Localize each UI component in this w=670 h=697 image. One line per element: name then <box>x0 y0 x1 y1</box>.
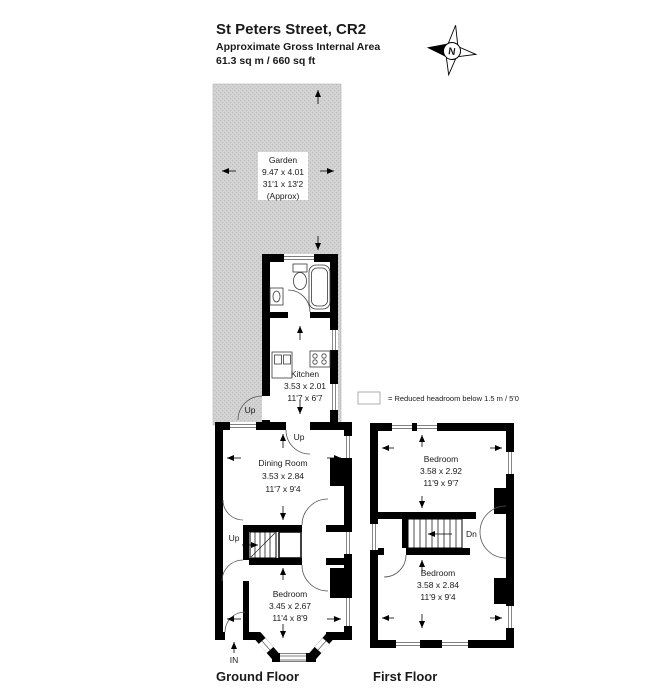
understairs-cupboard <box>279 532 301 558</box>
kitchen-steps-up-label: Up <box>294 432 305 442</box>
legend-swatch <box>358 392 380 404</box>
first-floor-plan: Dn Bedroom 3.58 x 2.92 11'9 x 9'7 Bedroo… <box>370 423 514 648</box>
floorplan-drawing: St Peters Street, CR2 Approximate Gross … <box>0 0 670 697</box>
legend: = Reduced headroom below 1.5 m / 5'0 <box>358 392 519 404</box>
floor-labels: Ground Floor First Floor <box>216 669 437 684</box>
dining-room-label: Dining Room 3.53 x 2.84 11'7 x 9'4 <box>258 458 307 494</box>
bedroom-front-metric: 3.58 x 2.84 <box>417 580 459 590</box>
garden-imperial: 31'1 x 13'2 <box>263 179 304 189</box>
kitchen-metric: 3.53 x 2.01 <box>284 381 326 391</box>
dining-name: Dining Room <box>258 458 307 468</box>
page-area: 61.3 sq m / 660 sq ft <box>216 55 316 67</box>
compass-n-label: N <box>447 46 456 58</box>
entrance: IN <box>230 642 239 665</box>
bay-window <box>257 635 331 662</box>
basin-icon <box>270 288 283 305</box>
first-bedroom-rear-label: Bedroom 3.58 x 2.92 11'9 x 9'7 <box>420 454 462 488</box>
garden-note: (Approx) <box>267 191 300 201</box>
header: St Peters Street, CR2 Approximate Gross … <box>216 21 380 67</box>
first-floor-label: First Floor <box>373 669 437 684</box>
ground-bedroom-label: Bedroom 3.45 x 2.67 11'4 x 8'9 <box>269 589 311 623</box>
bathtub-icon <box>309 265 330 309</box>
dining-metric: 3.53 x 2.84 <box>262 471 304 481</box>
bedroom-rear-imperial: 11'9 x 9'7 <box>423 478 458 488</box>
bedroom-front-name: Bedroom <box>421 568 456 578</box>
staircase-first: Dn <box>408 519 477 548</box>
entrance-label: IN <box>230 655 239 665</box>
page-title: St Peters Street, CR2 <box>216 21 366 38</box>
floorplan-page: St Peters Street, CR2 Approximate Gross … <box>0 0 670 697</box>
kitchen-name: Kitchen <box>291 369 320 379</box>
garden-name: Garden <box>269 155 298 165</box>
ground-floor-main: Up Up <box>215 422 352 665</box>
dining-imperial: 11'7 x 9'4 <box>265 484 300 494</box>
north-compass-icon: N <box>425 22 479 78</box>
ground-bedroom-imperial: 11'4 x 8'9 <box>272 613 307 623</box>
first-bedroom-front-label: Bedroom 3.58 x 2.84 11'9 x 9'4 <box>417 568 459 602</box>
garden-metric: 9.47 x 4.01 <box>262 167 304 177</box>
legend-text: = Reduced headroom below 1.5 m / 5'0 <box>388 394 519 403</box>
stairs-down-label: Dn <box>466 529 477 539</box>
kitchen-imperial: 11'7 x 6'7 <box>287 393 322 403</box>
stairs-up-label: Up <box>229 533 240 543</box>
bedroom-rear-name: Bedroom <box>424 454 459 464</box>
bedroom-rear-metric: 3.58 x 2.92 <box>420 466 462 476</box>
garden-steps-up-label: Up <box>245 405 256 415</box>
page-subtitle: Approximate Gross Internal Area <box>216 41 380 53</box>
toilet-icon <box>293 264 307 290</box>
ground-bedroom-metric: 3.45 x 2.67 <box>269 601 311 611</box>
bedroom-front-imperial: 11'9 x 9'4 <box>420 592 455 602</box>
ground-bedroom-name: Bedroom <box>273 589 308 599</box>
staircase-ground: Up <box>229 532 276 558</box>
kitchen-sink-icon <box>272 352 292 378</box>
ground-floor-label: Ground Floor <box>216 669 299 684</box>
stove-icon <box>310 351 330 367</box>
